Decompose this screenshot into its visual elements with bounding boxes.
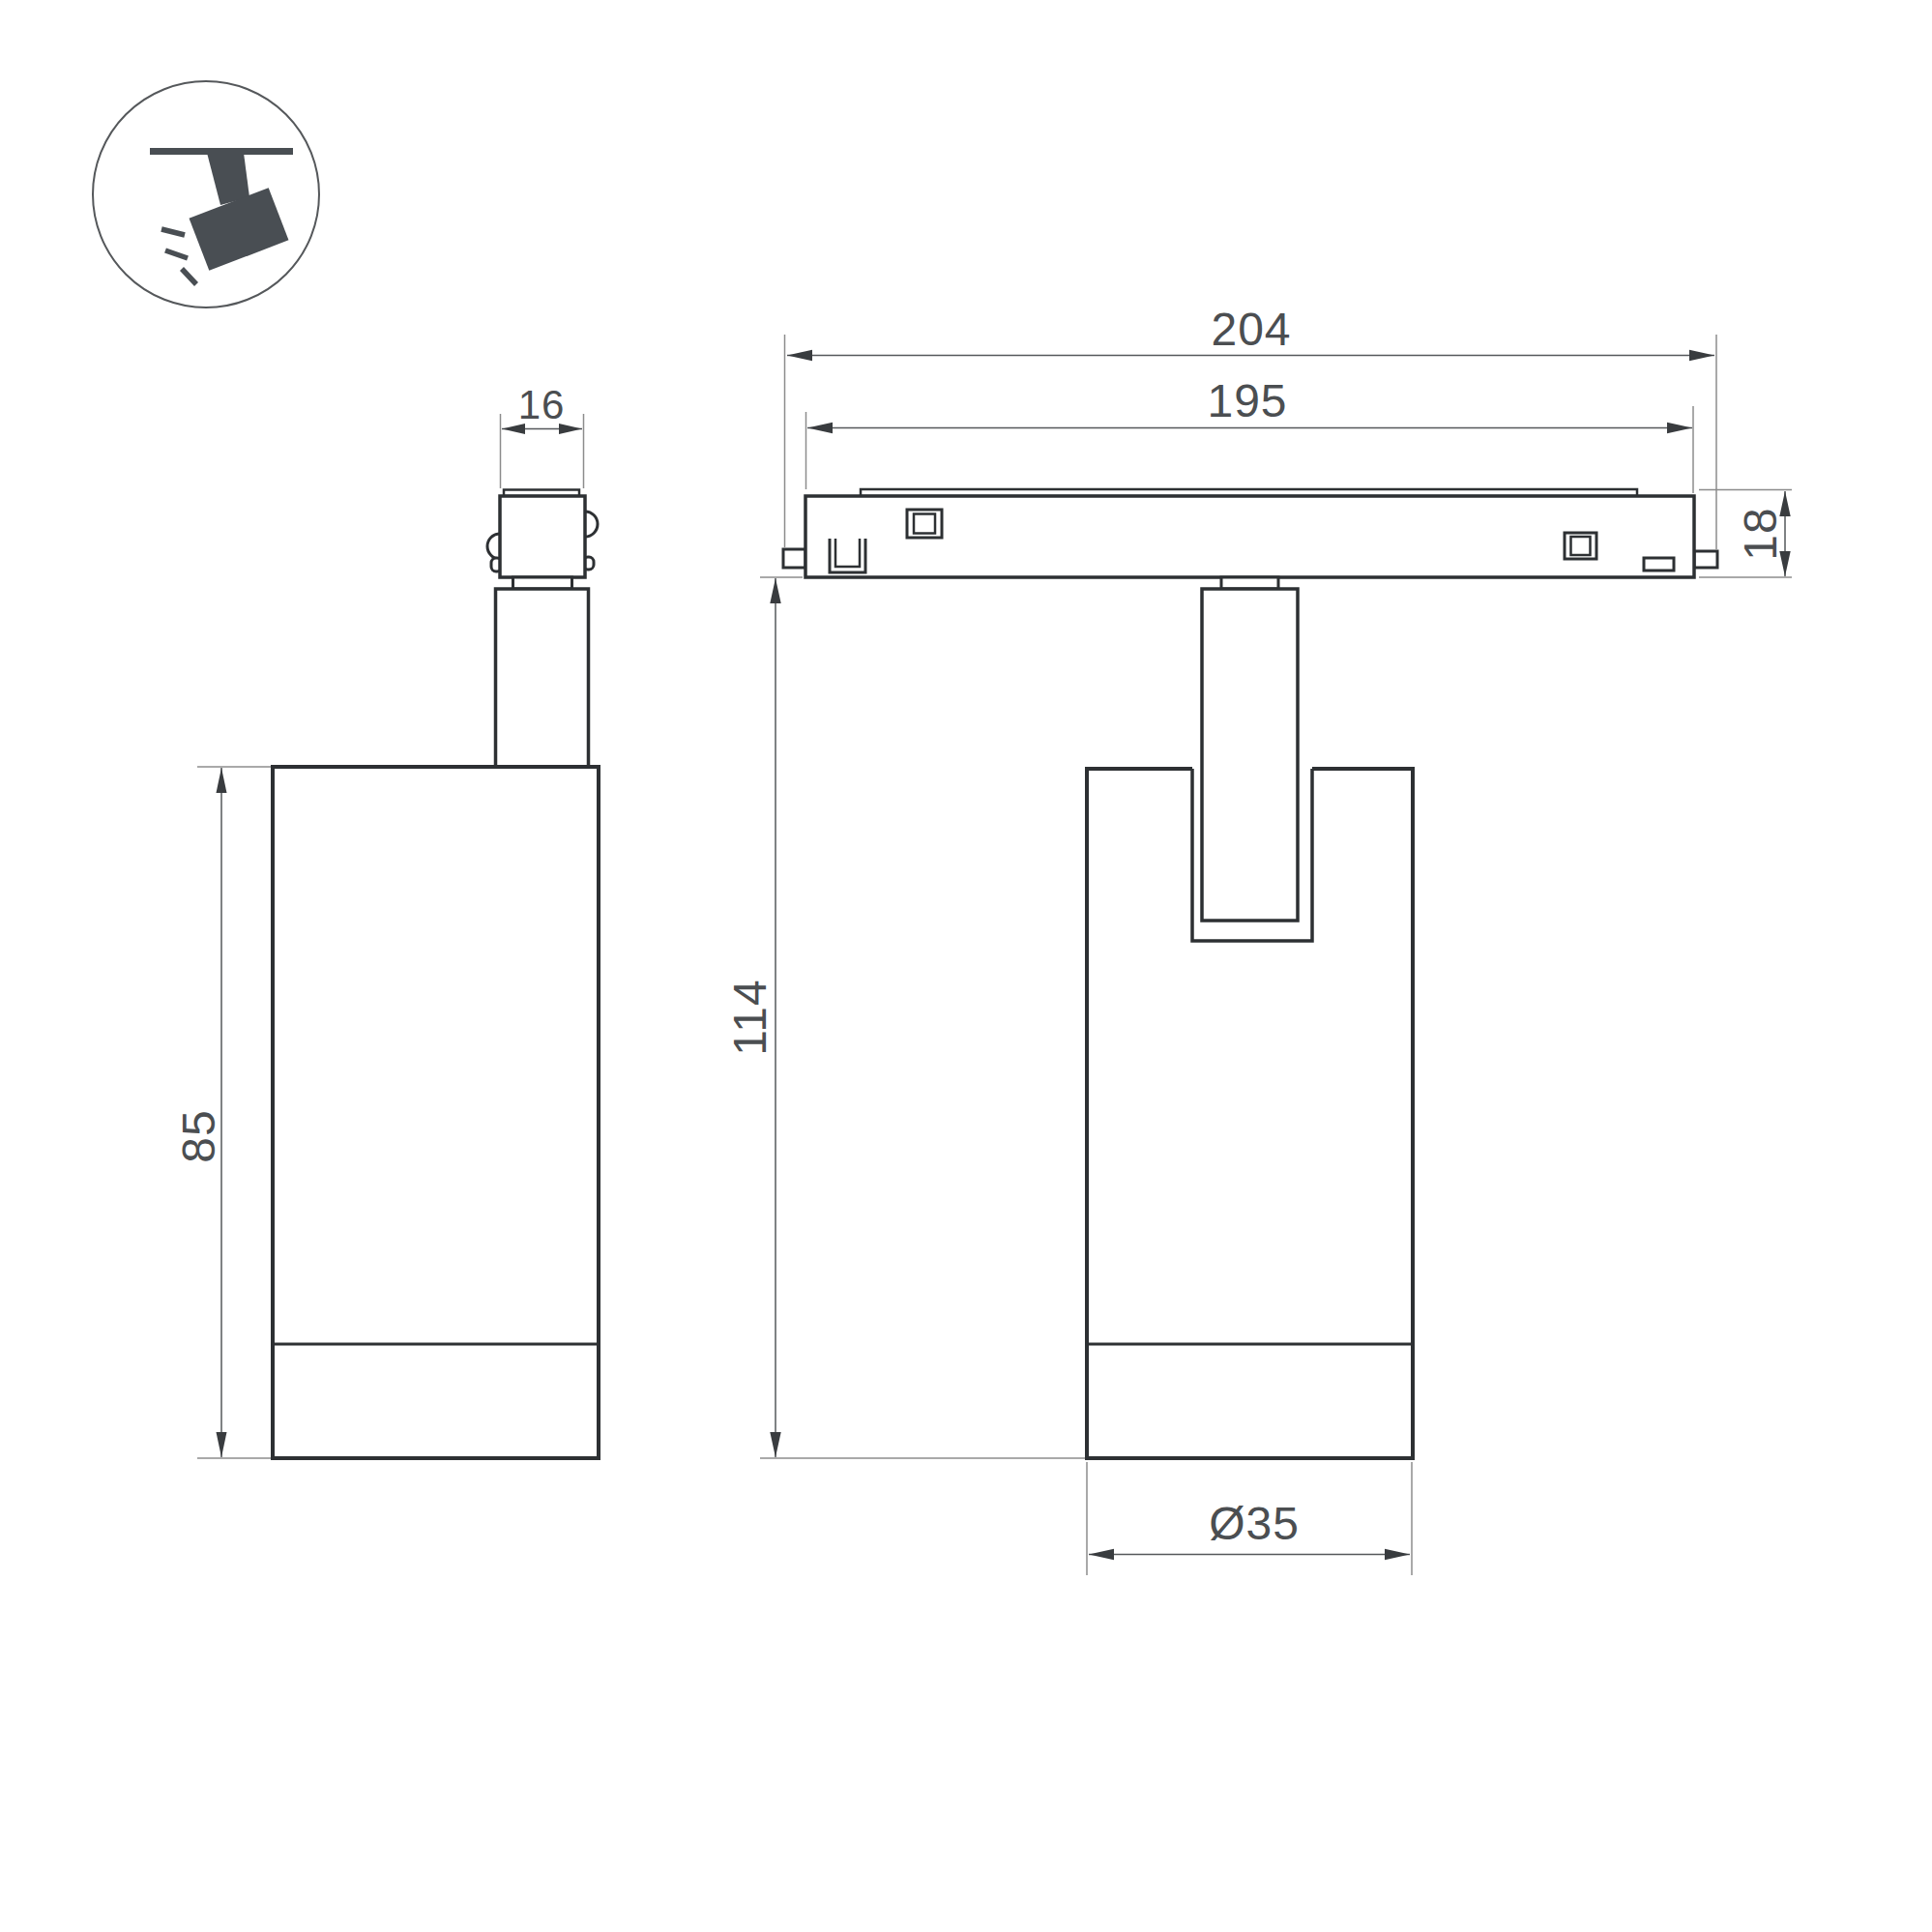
dim-adapter-width: 16 [501,382,584,488]
dim-label-35: Ø35 [1209,1498,1300,1549]
track-end-tab-right [1694,551,1717,568]
adapter-box-side [500,496,585,577]
dim-track-inner-length: 195 [806,375,1694,493]
stem-side [496,589,589,767]
dim-label-16: 16 [518,382,566,427]
drawing-page: 16 85 2 [0,0,1932,1932]
track-window-right-inner [1571,537,1591,555]
adapter-neck-side [513,577,572,589]
arrow-up [217,768,227,793]
arrow-right [1667,423,1692,433]
dim-body-height: 85 [173,767,271,1458]
arrow-left [787,350,812,361]
track-window-left-inner [914,514,935,534]
track-slot-right [1644,558,1674,571]
dim-label-114: 114 [724,979,776,1056]
stem-nub-front [1221,577,1278,589]
arrow-down [217,1432,227,1457]
dim-label-18: 18 [1735,507,1786,560]
stem-front [1202,589,1298,921]
arrow-right [1689,350,1714,361]
arrow-up [770,578,780,603]
adapter-ear-left [487,534,500,559]
dim-body-diameter: Ø35 [1087,1462,1412,1575]
adapter-ear-right [585,512,598,537]
side-view [273,490,599,1459]
dim-label-204: 204 [1211,304,1291,355]
arrow-left [1089,1549,1114,1560]
front-view-lamp [1087,577,1413,1458]
track-light-icon [93,81,319,307]
arrow-right [1385,1549,1410,1560]
track-end-tab-left [783,549,805,568]
arrow-left [807,423,833,433]
dim-label-195: 195 [1207,375,1287,426]
dim-label-85: 85 [173,1109,224,1162]
front-view-track [783,489,1717,577]
icon-circle [93,81,319,307]
dim-overall-height: 114 [724,577,1085,1458]
dimension-drawing: 16 85 2 [0,0,1932,1932]
lamp-body-side [273,767,599,1458]
arrow-down [770,1432,780,1457]
